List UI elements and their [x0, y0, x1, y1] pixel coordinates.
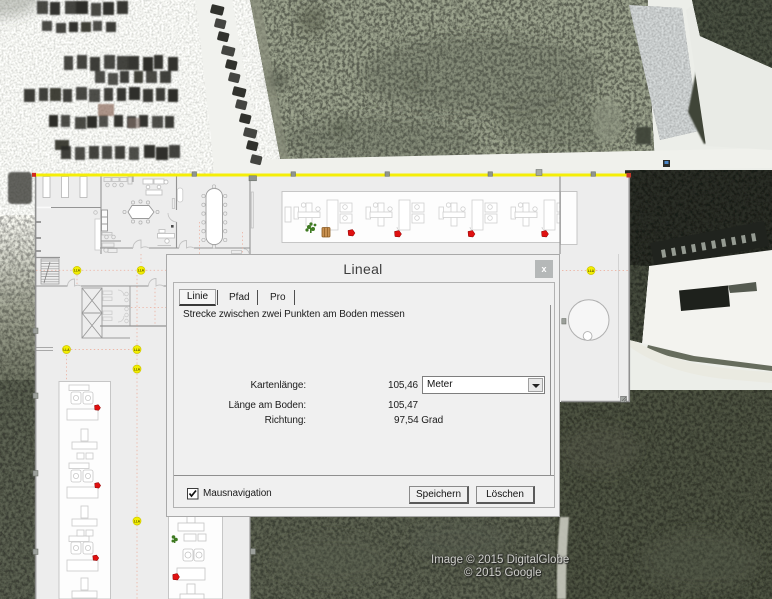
svg-text:LLA: LLA: [588, 269, 595, 273]
svg-text:LLA: LLA: [138, 269, 145, 273]
svg-text:LLA: LLA: [63, 348, 70, 352]
svg-text:LLA: LLA: [74, 269, 81, 273]
svg-text:LLA: LLA: [134, 348, 141, 352]
svg-text:LLA: LLA: [134, 519, 141, 523]
svg-text:LLA: LLA: [134, 367, 141, 371]
